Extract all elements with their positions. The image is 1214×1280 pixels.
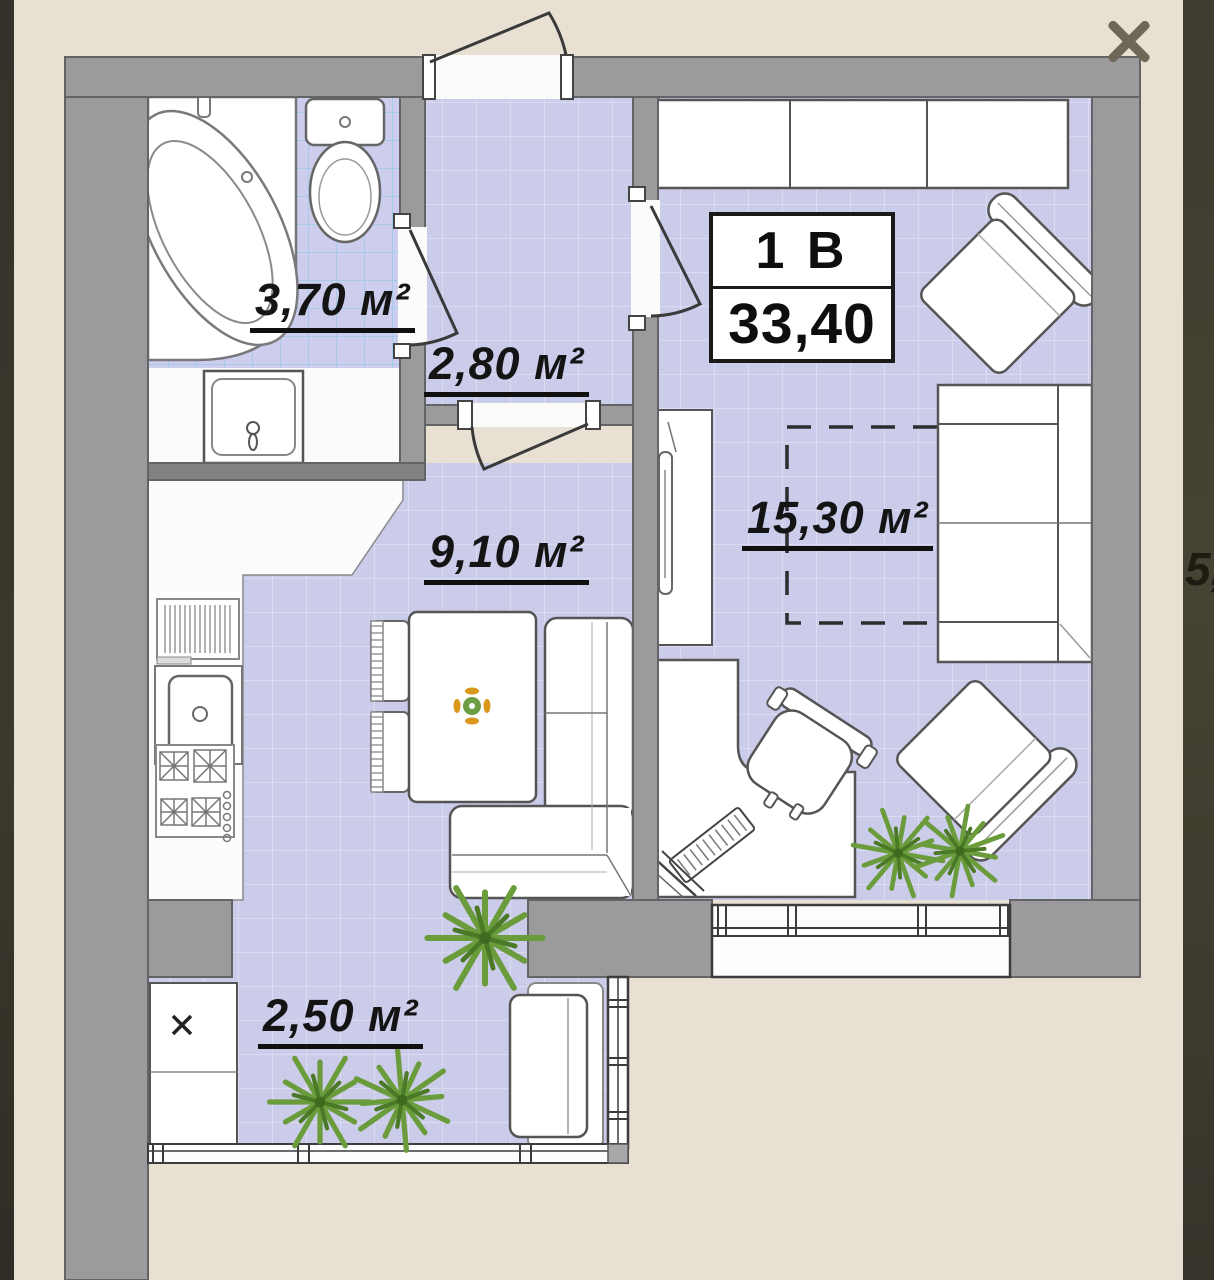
area-label-balcony: 2,50 м² xyxy=(258,990,423,1049)
unit-label-box: 1 B 33,40 xyxy=(709,212,895,363)
background-strip-left xyxy=(0,0,14,1280)
dish-drainer xyxy=(157,599,239,664)
balcony-cabinet xyxy=(150,983,237,1163)
balcony-side-window xyxy=(608,977,628,1148)
stove xyxy=(156,745,234,842)
lightbox-backdrop: 3,70 м² 2,80 м² 9,10 м² 15,30 м² 2,50 м²… xyxy=(0,0,1214,1280)
tv-cabinet xyxy=(654,410,712,645)
toilet xyxy=(306,99,384,242)
area-label-hallway: 2,80 м² xyxy=(424,338,589,397)
bathroom-sink xyxy=(204,371,303,463)
balcony-bench xyxy=(510,983,603,1148)
unit-total-area: 33,40 xyxy=(713,289,891,359)
area-label-living-room: 15,30 м² xyxy=(742,492,933,551)
balcony-front-window xyxy=(148,1144,628,1163)
cropped-label-fragment: 5, xyxy=(1185,542,1214,596)
living-room-window xyxy=(712,905,1010,977)
background-strip-right: 5, xyxy=(1183,0,1214,1280)
sofa xyxy=(938,385,1092,662)
area-label-kitchen: 9,10 м² xyxy=(424,526,589,585)
area-label-bathroom: 3,70 м² xyxy=(250,274,415,333)
unit-type-label: 1 B xyxy=(713,216,891,289)
wardrobe xyxy=(652,100,1068,188)
floor-plan xyxy=(0,0,1214,1280)
close-button[interactable] xyxy=(1100,12,1158,70)
